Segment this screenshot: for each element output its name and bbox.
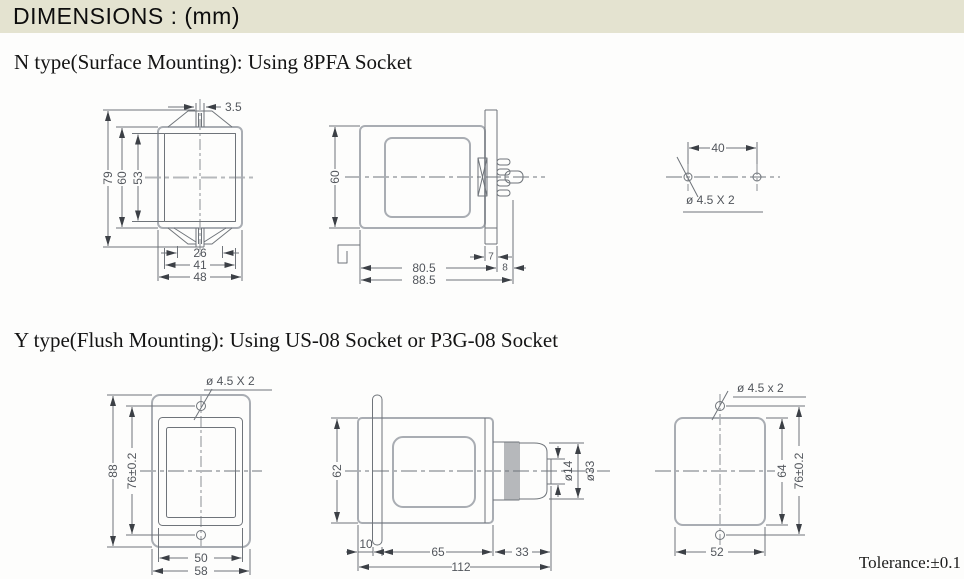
dim-label-body-width: 48 (193, 270, 207, 284)
dim-label-hole-pitch: 76±0.2 (792, 452, 806, 489)
dim-label-overall-depth: 88.5 (412, 273, 436, 287)
dim-label-cutout-height: 64 (775, 464, 789, 478)
knurled-ring (505, 442, 519, 500)
hole-spec-label: ø 4.5 X 2 (686, 193, 735, 207)
y-type-side-view: 62 ø14 ø33 10 65 33 112 (330, 395, 610, 574)
dim-label-body-depth: 65 (431, 545, 445, 559)
dim-label-window-width: 50 (194, 551, 208, 565)
mounting-hook (338, 245, 360, 263)
n-type-side-view: 60 7 80.5 8 88.5 (328, 110, 545, 287)
dim-label-notch-width: 3.5 (225, 100, 242, 114)
y-type-rear-view: ø 4.5 x 2 64 76±0.2 52 (655, 381, 806, 559)
dim-label-pin-length: 8 (502, 263, 508, 274)
hole-spec-label: ø 4.5 x 2 (737, 381, 784, 395)
dim-label-overall-height: 79 (101, 171, 115, 185)
n-type-hole-pattern: ø 4.5 X 2 40 (666, 141, 780, 212)
dim-label-body-height: 60 (115, 171, 129, 185)
dim-label-overall-width: 58 (194, 564, 208, 578)
dim-label-shaft-dia: ø14 (561, 460, 575, 481)
dim-label-cutout-width: 52 (710, 545, 724, 559)
hole-spec-label: ø 4.5 X 2 (206, 374, 255, 388)
dim-label-socket-depth: 33 (515, 545, 529, 559)
y-type-front-view: ø 4.5 X 2 88 76±0.2 50 58 (106, 374, 272, 578)
dim-label-knob-dia: ø33 (583, 460, 597, 481)
dim-label-body-height: 62 (330, 464, 344, 478)
technical-drawings-canvas: 3.5 79 60 53 26 41 48 (0, 0, 964, 579)
dim-label-hole-pitch: 40 (711, 141, 725, 155)
n-type-front-view: 3.5 79 60 53 26 41 48 (101, 99, 255, 284)
dim-label-window-height: 53 (131, 171, 145, 185)
dim-label-flange-thickness: 7 (488, 252, 494, 263)
dim-label-overall-height: 88 (106, 464, 120, 478)
n-front-dimension-lines (103, 103, 242, 281)
dim-label-overall-depth: 112 (451, 560, 470, 574)
dim-label-body-height: 60 (328, 170, 342, 184)
dim-label-hole-pitch: 76±0.2 (125, 452, 139, 489)
dim-label-flange-offset: 10 (359, 537, 373, 551)
